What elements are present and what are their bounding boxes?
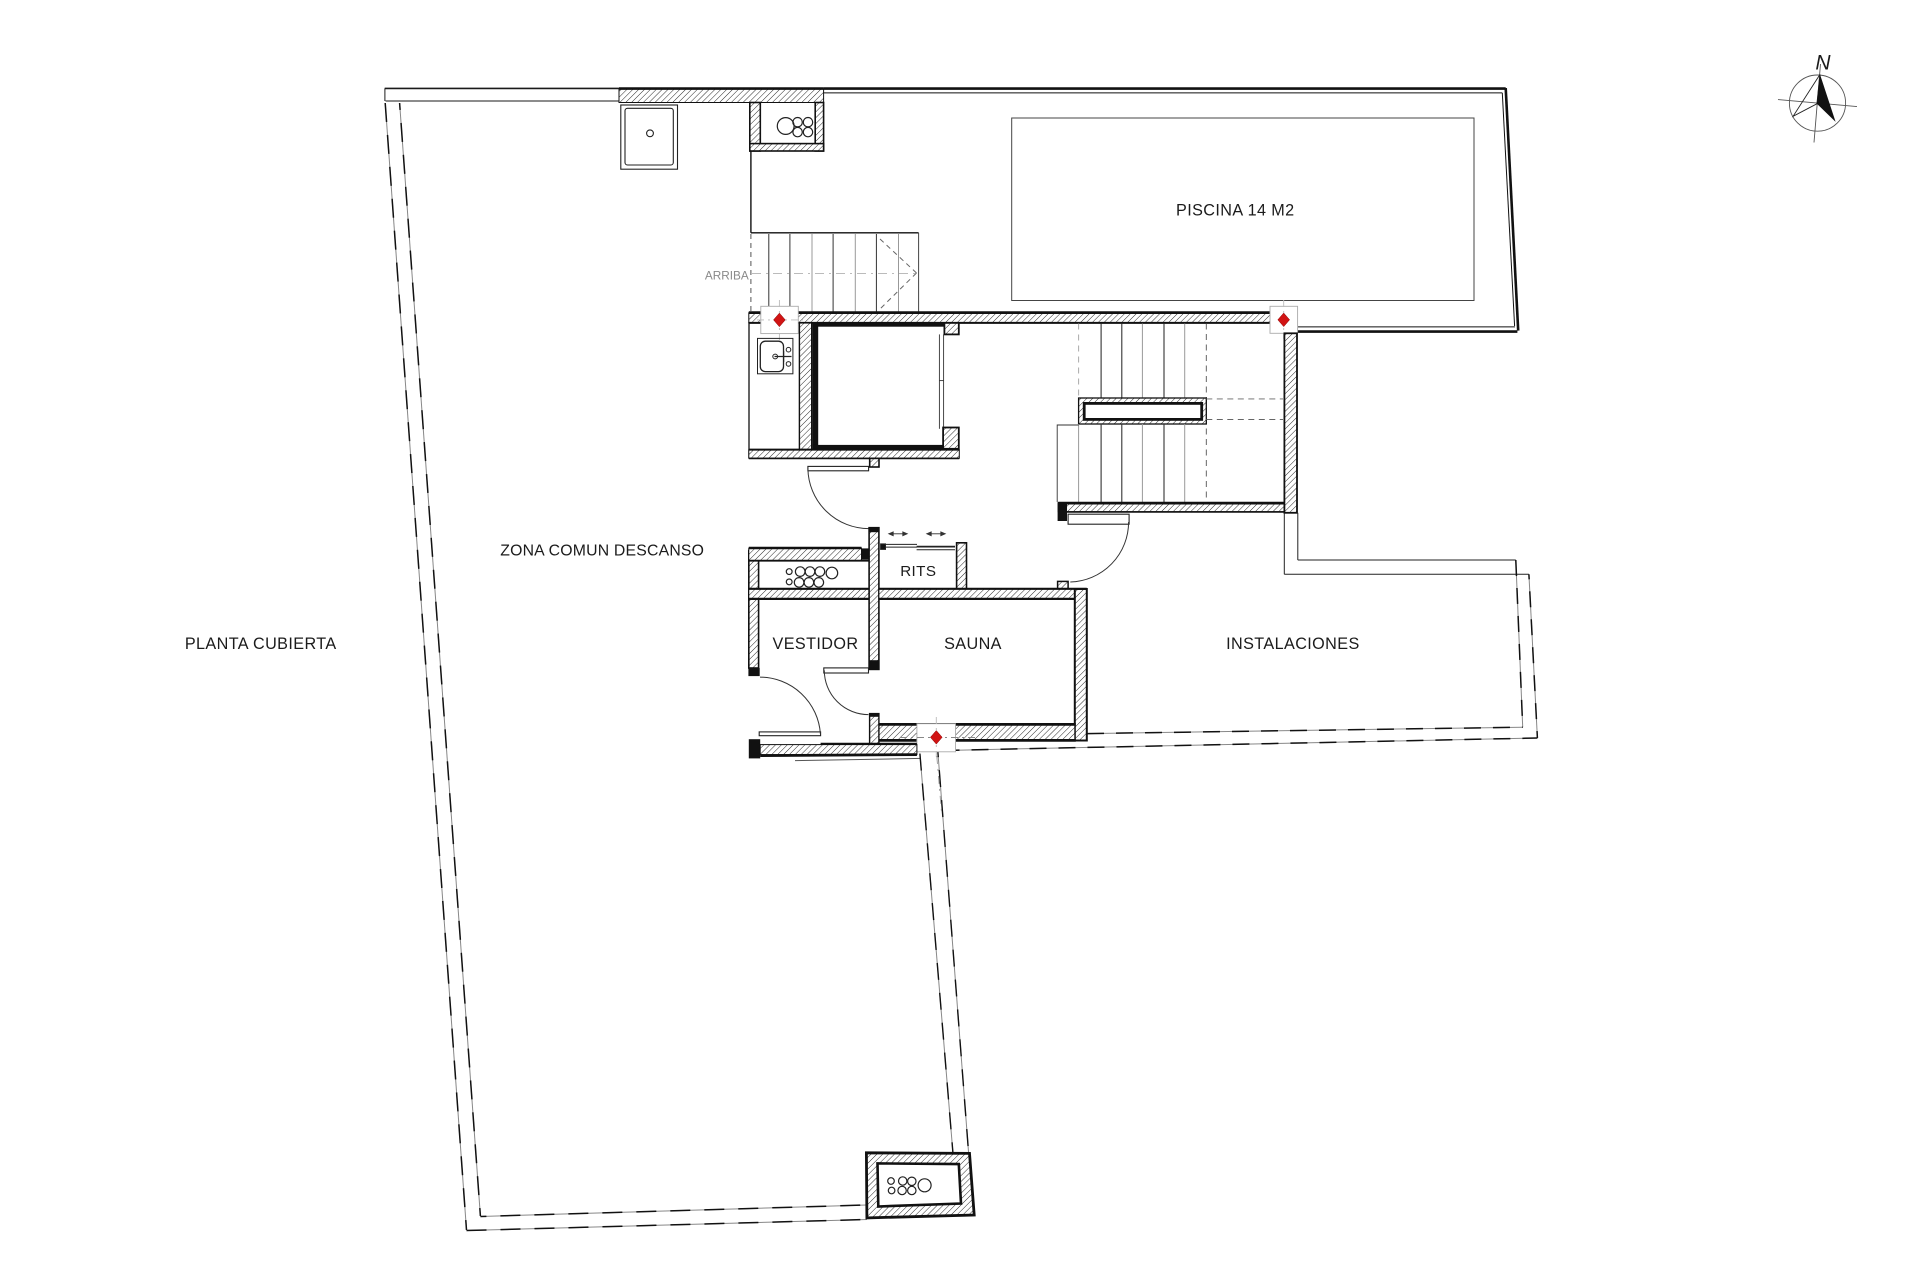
svg-text:ARRIBA: ARRIBA (705, 269, 749, 283)
svg-text:INSTALACIONES: INSTALACIONES (1226, 635, 1360, 653)
svg-text:ZONA COMUN DESCANSO: ZONA COMUN DESCANSO (500, 543, 704, 560)
svg-text:PISCINA 14 M2: PISCINA 14 M2 (1176, 202, 1295, 220)
svg-text:PLANTA CUBIERTA: PLANTA CUBIERTA (185, 635, 337, 653)
svg-text:SAUNA: SAUNA (944, 635, 1002, 653)
svg-text:N: N (1815, 52, 1831, 75)
svg-text:RITS: RITS (900, 563, 936, 580)
svg-text:VESTIDOR: VESTIDOR (773, 635, 859, 653)
